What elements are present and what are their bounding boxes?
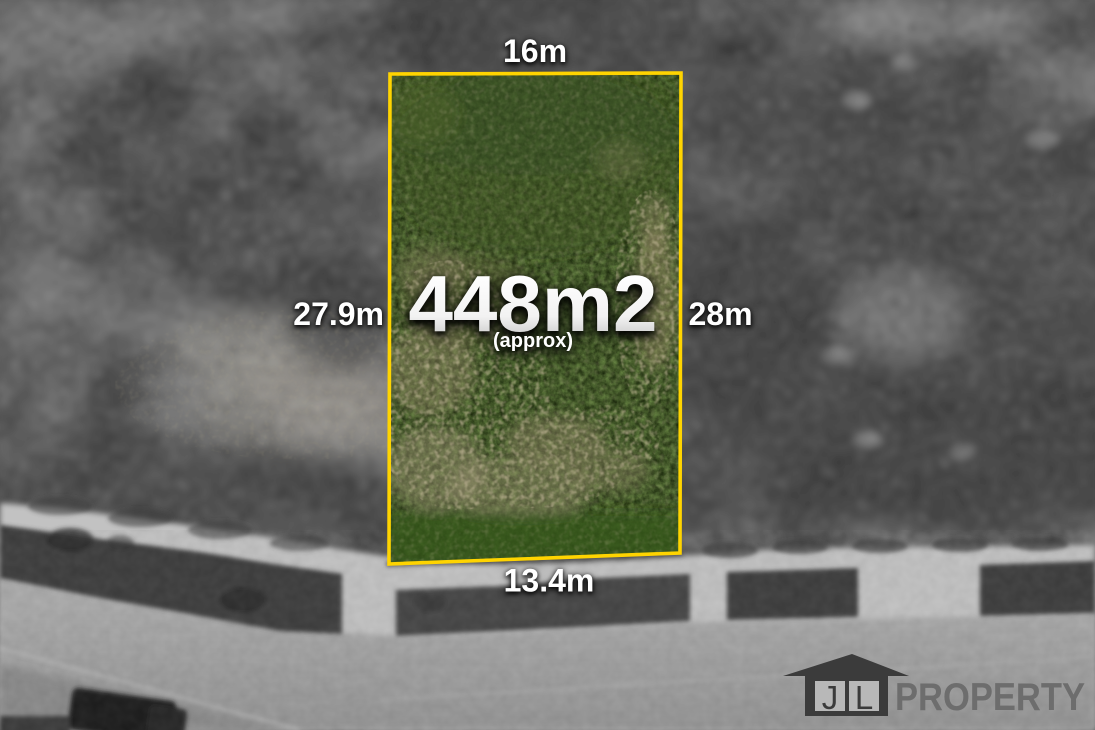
svg-text:PROPERTY: PROPERTY xyxy=(895,676,1085,719)
svg-text:13.4m: 13.4m xyxy=(504,563,595,599)
svg-text:L: L xyxy=(855,679,873,716)
svg-text:28m: 28m xyxy=(689,296,753,332)
svg-text:16m: 16m xyxy=(503,33,567,69)
svg-text:J: J xyxy=(822,679,839,716)
svg-text:27.9m: 27.9m xyxy=(293,296,384,332)
svg-text:(approx): (approx) xyxy=(493,330,573,352)
